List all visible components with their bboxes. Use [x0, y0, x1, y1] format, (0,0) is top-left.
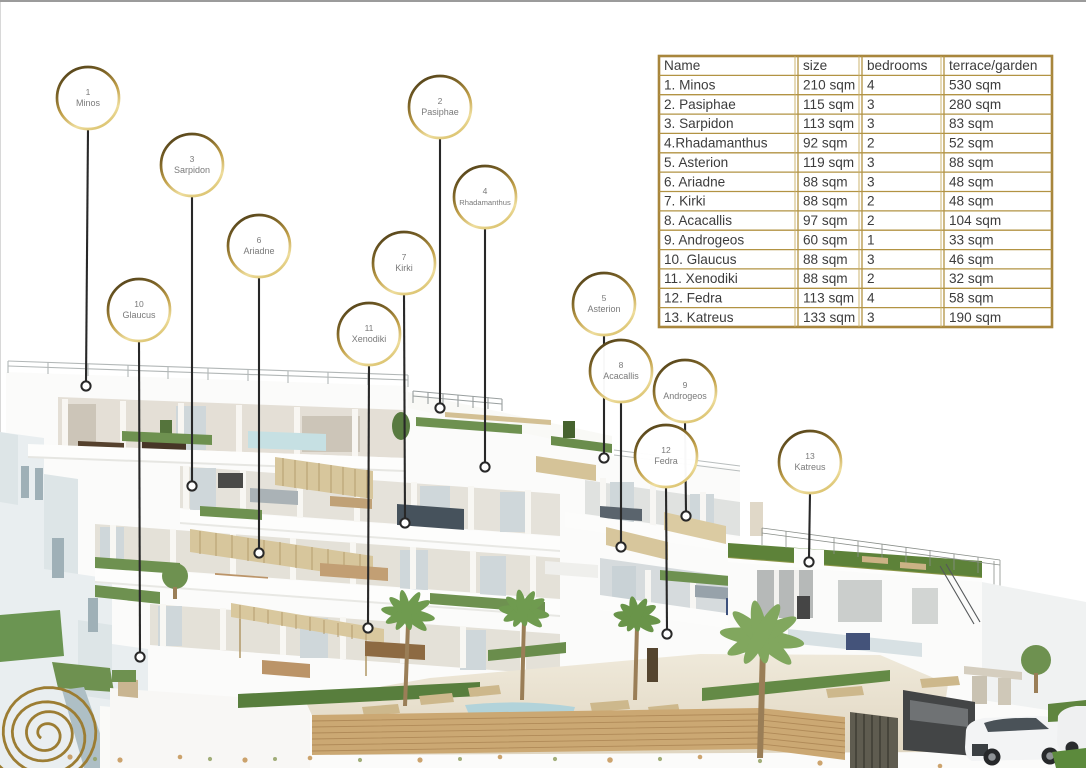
svg-text:2: 2: [438, 96, 443, 106]
svg-text:88 sqm: 88 sqm: [803, 271, 848, 286]
svg-text:Katreus: Katreus: [794, 462, 826, 472]
svg-text:terrace/garden: terrace/garden: [949, 58, 1037, 73]
svg-text:7: 7: [402, 252, 407, 262]
svg-text:88 sqm: 88 sqm: [803, 194, 848, 209]
svg-text:size: size: [803, 58, 827, 73]
svg-text:6. Ariadne: 6. Ariadne: [664, 174, 725, 189]
svg-text:3: 3: [867, 116, 875, 131]
svg-text:Fedra: Fedra: [654, 456, 678, 466]
svg-text:33 sqm: 33 sqm: [949, 232, 994, 247]
svg-text:13. Katreus: 13. Katreus: [664, 310, 734, 325]
svg-text:280 sqm: 280 sqm: [949, 97, 1001, 112]
svg-text:Rhadamanthus: Rhadamanthus: [459, 198, 511, 207]
svg-text:Minos: Minos: [76, 98, 101, 108]
svg-text:113 sqm: 113 sqm: [803, 116, 854, 131]
svg-text:Glaucus: Glaucus: [122, 310, 156, 320]
svg-text:2: 2: [867, 136, 875, 151]
svg-text:115 sqm: 115 sqm: [803, 97, 854, 112]
svg-text:Androgeos: Androgeos: [663, 391, 707, 401]
svg-text:210 sqm: 210 sqm: [803, 78, 855, 93]
svg-text:11: 11: [365, 323, 374, 333]
svg-text:7. Kirki: 7. Kirki: [664, 194, 706, 209]
svg-text:2: 2: [867, 213, 875, 228]
svg-text:88 sqm: 88 sqm: [949, 155, 994, 170]
svg-text:3: 3: [867, 174, 875, 189]
svg-text:11. Xenodiki: 11. Xenodiki: [664, 271, 738, 286]
svg-text:2: 2: [867, 271, 875, 286]
svg-text:48 sqm: 48 sqm: [949, 174, 994, 189]
svg-text:190 sqm: 190 sqm: [949, 310, 1001, 325]
svg-text:3: 3: [867, 155, 875, 170]
svg-text:Ariadne: Ariadne: [243, 246, 274, 256]
svg-text:10. Glaucus: 10. Glaucus: [664, 252, 737, 267]
svg-text:530 sqm: 530 sqm: [949, 78, 1001, 93]
svg-text:104 sqm: 104 sqm: [949, 213, 1001, 228]
svg-text:52 sqm: 52 sqm: [949, 136, 994, 151]
svg-text:113 sqm: 113 sqm: [803, 291, 854, 306]
svg-text:Xenodiki: Xenodiki: [352, 334, 387, 344]
svg-text:5. Asterion: 5. Asterion: [664, 155, 728, 170]
svg-text:2. Pasiphae: 2. Pasiphae: [664, 97, 736, 112]
svg-text:3: 3: [190, 154, 195, 164]
svg-text:4: 4: [867, 291, 875, 306]
svg-text:10: 10: [134, 299, 144, 309]
svg-text:119 sqm: 119 sqm: [803, 155, 854, 170]
svg-text:9: 9: [683, 380, 688, 390]
svg-text:83 sqm: 83 sqm: [949, 116, 994, 131]
svg-text:8. Acacallis: 8. Acacallis: [664, 213, 732, 228]
svg-text:Kirki: Kirki: [395, 263, 413, 273]
svg-text:92 sqm: 92 sqm: [803, 136, 848, 151]
svg-text:3: 3: [867, 310, 875, 325]
svg-text:bedrooms: bedrooms: [867, 58, 928, 73]
svg-text:58 sqm: 58 sqm: [949, 291, 994, 306]
svg-text:Pasiphae: Pasiphae: [421, 107, 459, 117]
svg-text:4: 4: [867, 78, 875, 93]
svg-text:97 sqm: 97 sqm: [803, 213, 848, 228]
svg-text:6: 6: [257, 235, 262, 245]
svg-text:4.Rhadamanthus: 4.Rhadamanthus: [664, 136, 768, 151]
svg-text:1: 1: [867, 232, 875, 247]
svg-text:60 sqm: 60 sqm: [803, 232, 848, 247]
svg-text:9. Androgeos: 9. Androgeos: [664, 232, 744, 247]
svg-text:Asterion: Asterion: [587, 304, 620, 314]
svg-text:Acacallis: Acacallis: [603, 371, 639, 381]
svg-text:48 sqm: 48 sqm: [949, 194, 994, 209]
svg-text:2: 2: [867, 194, 875, 209]
svg-text:88 sqm: 88 sqm: [803, 252, 848, 267]
svg-text:Name: Name: [664, 58, 700, 73]
svg-text:32 sqm: 32 sqm: [949, 271, 994, 286]
svg-text:8: 8: [619, 360, 624, 370]
svg-text:1. Minos: 1. Minos: [664, 78, 716, 93]
svg-text:3: 3: [867, 97, 875, 112]
svg-text:Sarpidon: Sarpidon: [174, 165, 210, 175]
svg-text:1: 1: [86, 87, 91, 97]
svg-text:12: 12: [661, 445, 671, 455]
svg-text:88 sqm: 88 sqm: [803, 174, 848, 189]
svg-text:13: 13: [805, 451, 815, 461]
svg-text:3. Sarpidon: 3. Sarpidon: [664, 116, 734, 131]
svg-text:4: 4: [483, 186, 488, 196]
svg-text:12. Fedra: 12. Fedra: [664, 291, 723, 306]
svg-text:46 sqm: 46 sqm: [949, 252, 994, 267]
svg-text:5: 5: [602, 293, 607, 303]
svg-text:3: 3: [867, 252, 875, 267]
svg-text:133 sqm: 133 sqm: [803, 310, 855, 325]
